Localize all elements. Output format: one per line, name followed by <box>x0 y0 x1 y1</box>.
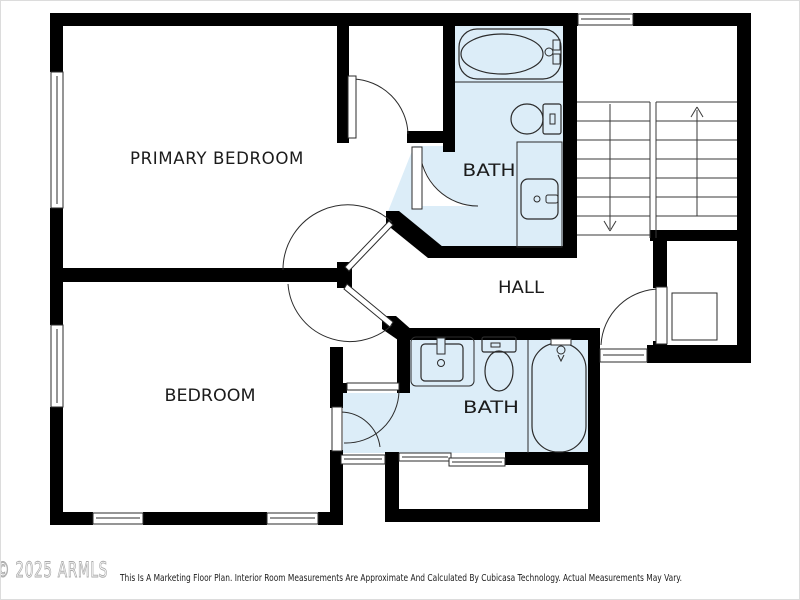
window-left-primary <box>51 72 63 208</box>
wall-left-a <box>50 13 63 72</box>
wall-bump-bottom-b <box>385 509 600 522</box>
wall-hall-closet-left-a <box>653 241 667 288</box>
wall-bath-lower-right <box>588 328 600 520</box>
wall-top-right <box>633 13 751 26</box>
window-bottom-bedroom-1 <box>93 513 143 524</box>
wall-stairs-bottom <box>650 230 742 241</box>
wall-bottom-c <box>318 512 343 525</box>
floor-plan-canvas: PRIMARY BEDROOM BATH HALL BEDROOM BATH ©… <box>0 0 800 600</box>
label-bedroom: BEDROOM <box>165 386 256 406</box>
label-primary-bedroom: PRIMARY BEDROOM <box>130 149 304 168</box>
wall-bath-upper-left <box>443 26 455 152</box>
wall-closet-left <box>337 26 349 143</box>
label-bath-lower: BATH <box>463 398 519 418</box>
window-hall-bottom <box>600 349 647 362</box>
disclaimer-text: This Is A Marketing Floor Plan. Interior… <box>119 573 682 584</box>
window-top-stairwell <box>578 14 633 25</box>
label-hall: HALL <box>498 278 545 298</box>
window-bath-lower-1 <box>341 455 385 464</box>
window-left-bedroom <box>51 325 63 407</box>
floor-plan-page: PRIMARY BEDROOM BATH HALL BEDROOM BATH ©… <box>0 0 800 600</box>
window-bottom-bedroom-2 <box>267 513 318 524</box>
wall-bottom-b <box>143 512 267 525</box>
armls-watermark: © 2025 ARMLS <box>0 558 108 582</box>
wall-left-c <box>50 407 63 525</box>
wall-left-b <box>50 208 63 325</box>
wall-bath-lower-top <box>398 328 600 340</box>
wall-bedroom-right-a <box>330 347 343 408</box>
wall-bump-bottom-a <box>505 452 590 465</box>
wall-top-left <box>50 13 578 26</box>
wall-bath-upper-bottom <box>428 246 570 258</box>
label-bath-upper: BATH <box>463 161 516 181</box>
wall-divider <box>58 268 350 282</box>
wall-stair-left <box>563 26 577 258</box>
hall-closet-unit <box>672 293 717 340</box>
wall-right <box>737 13 751 363</box>
wall-bottom-a <box>50 512 93 525</box>
window-bath-lower-2 <box>399 453 451 461</box>
window-bath-lower-3 <box>449 458 505 466</box>
wall-closet-bottom-a <box>337 131 348 143</box>
